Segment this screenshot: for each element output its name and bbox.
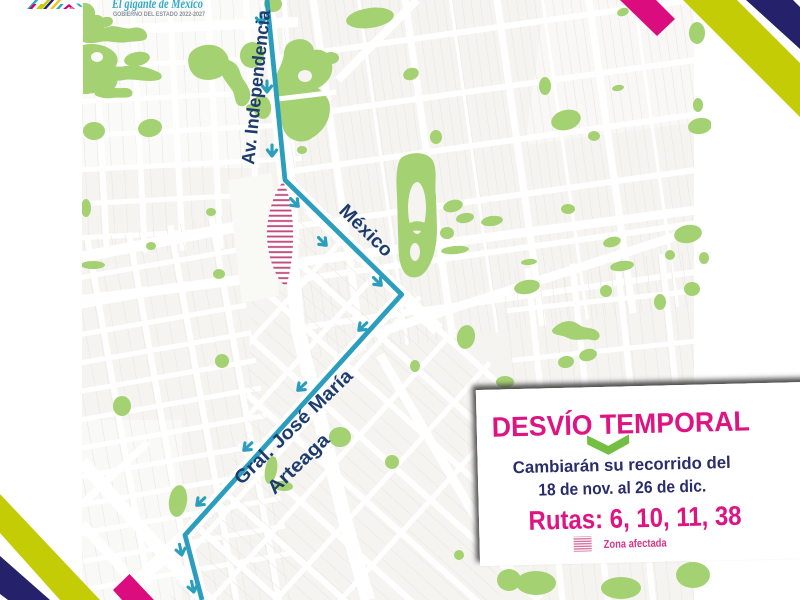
svg-text:Rutas: 6, 10, 11, 38: Rutas: 6, 10, 11, 38 bbox=[528, 501, 742, 536]
svg-text:El gigante de México: El gigante de México bbox=[111, 0, 203, 12]
svg-text:DESVÍO TEMPORAL: DESVÍO TEMPORAL bbox=[491, 405, 750, 442]
svg-text:Zona afectada: Zona afectada bbox=[604, 537, 668, 551]
svg-text:GOBIERNO DEL ESTADO 2022-2027: GOBIERNO DEL ESTADO 2022-2027 bbox=[113, 12, 206, 18]
